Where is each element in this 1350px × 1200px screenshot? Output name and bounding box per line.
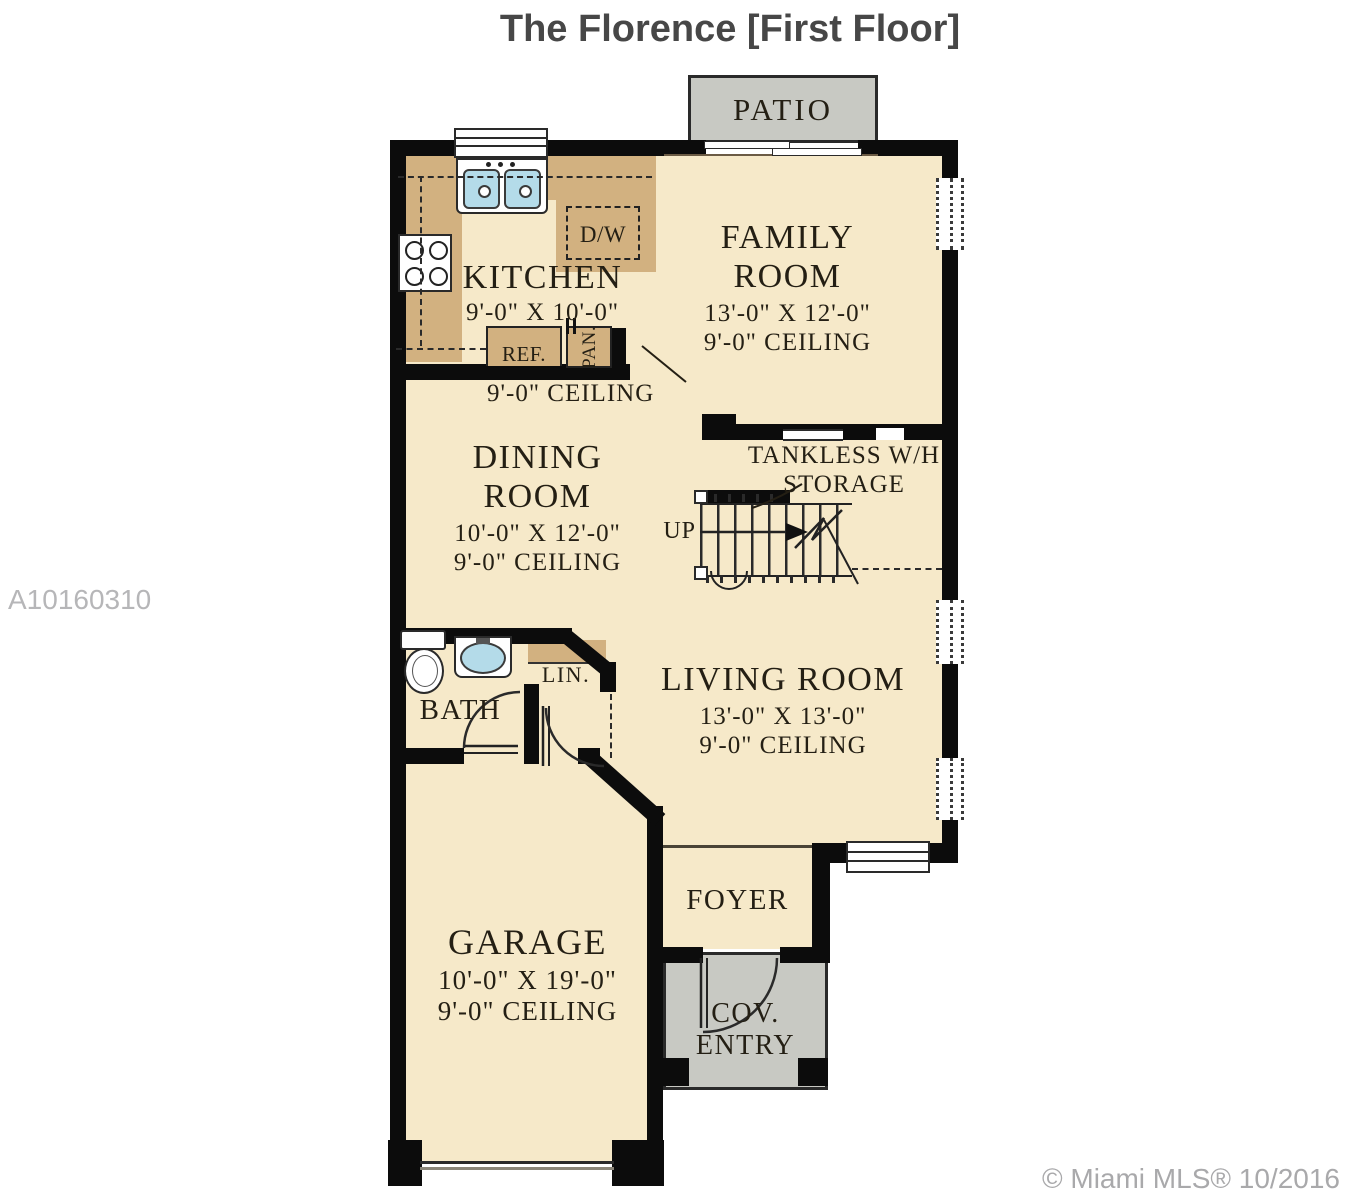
refrigerator-label: REF.	[488, 342, 560, 366]
opening-threshold	[663, 845, 812, 848]
stair-newel	[694, 566, 708, 580]
storage-label: TANKLESS W/H STORAGE	[738, 442, 950, 500]
linen-label: LIN.	[528, 662, 604, 687]
garage-door	[420, 1161, 614, 1164]
wall-notch	[876, 428, 904, 440]
kitchen-window	[454, 128, 548, 158]
cased-opening	[783, 429, 843, 441]
dishwasher-area: D/W	[566, 206, 640, 260]
wall-segment	[928, 843, 958, 863]
stair-newel	[694, 490, 708, 504]
cabinet-dash-line	[420, 176, 422, 346]
wall-segment	[390, 140, 406, 1186]
opening-dash	[610, 694, 612, 758]
toilet-fixture	[404, 648, 444, 694]
garage-door	[420, 1167, 614, 1170]
kitchen-ceiling-label: 9'-0" CEILING	[487, 380, 707, 409]
cabinet-dash-line	[396, 348, 486, 350]
mls-credit: © Miami MLS® 10/2016	[1040, 1163, 1340, 1195]
family-room-label: FAMILY ROOM 13'-0" X 12'-0" 9'-0" CEILIN…	[655, 218, 920, 358]
sliding-door	[772, 148, 862, 156]
kitchen-label: KITCHEN 9'-0" X 10'-0"	[440, 258, 645, 328]
window	[936, 600, 964, 664]
floor-plan: The Florence [First Floor] A10160310 © M…	[0, 0, 1350, 1200]
patio-label: PATIO	[691, 92, 875, 128]
living-room-label: LIVING ROOM 13'-0" X 13'-0" 9'-0" CEILIN…	[618, 660, 948, 761]
window	[936, 178, 964, 250]
wall-segment	[647, 947, 703, 963]
watermark: A10160310	[8, 584, 151, 616]
floor-plan-title: The Florence [First Floor]	[110, 8, 1350, 51]
patio-area: PATIO	[688, 75, 878, 143]
dishwasher-label: D/W	[568, 222, 638, 248]
wall-segment	[812, 843, 848, 863]
wall-segment	[942, 140, 958, 182]
wall-segment	[524, 684, 539, 764]
wall-segment	[612, 1140, 664, 1186]
wall-segment	[612, 328, 626, 380]
stairs	[700, 503, 852, 577]
bath-label: BATH	[398, 694, 523, 727]
kitchen-sink-fixture	[456, 158, 548, 214]
ceiling-break-dash	[852, 568, 942, 570]
front-window	[846, 841, 930, 873]
window	[936, 758, 964, 820]
cabinet-dash-line	[398, 176, 652, 178]
bath-sink-fixture	[454, 636, 512, 678]
wall-segment	[390, 748, 464, 764]
refrigerator-area: REF.	[486, 326, 562, 366]
wall-segment	[388, 1140, 422, 1186]
stairs-up-label: UP	[648, 518, 696, 546]
foyer-label: FOYER	[660, 884, 815, 917]
covered-entry-label: COV. ENTRY	[663, 998, 828, 1062]
garage-label: GARAGE 10'-0" X 19'-0" 9'-0" CEILING	[400, 922, 655, 1027]
toilet-fixture	[400, 630, 446, 650]
pantry-label: PAN.	[579, 329, 601, 369]
dining-room-label: DINING ROOM 10'-0" X 12'-0" 9'-0" CEILIN…	[415, 438, 660, 578]
wall-segment	[702, 414, 736, 440]
